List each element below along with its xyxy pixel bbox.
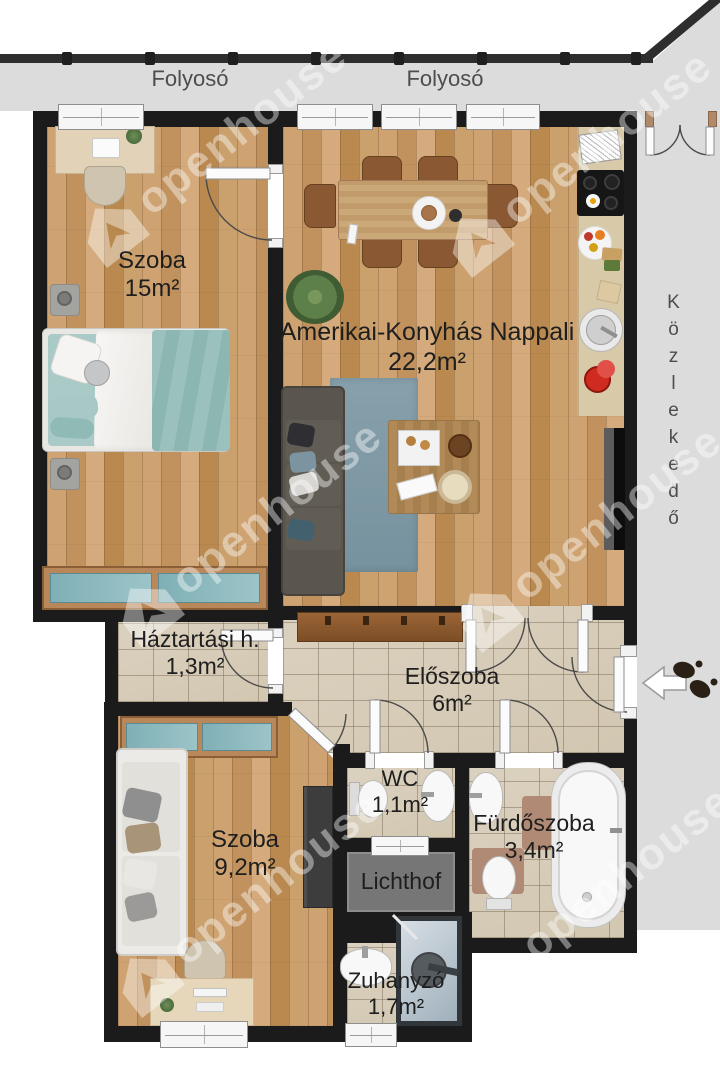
door-leaf bbox=[289, 708, 335, 752]
room-area: 1,7m² bbox=[330, 994, 462, 1020]
door-arc bbox=[206, 174, 272, 240]
room-name: Lichthof bbox=[347, 868, 455, 895]
door-leaf bbox=[646, 127, 654, 155]
door-swings bbox=[0, 0, 720, 1080]
room-area: 6m² bbox=[372, 690, 532, 717]
room-label-household: Háztartási h. 1,3m² bbox=[115, 626, 275, 680]
room-area: 15m² bbox=[92, 275, 212, 303]
room-label-lichthof: Lichthof bbox=[347, 868, 455, 895]
room-label-bathroom: Fürdőszoba 3,4m² bbox=[444, 810, 624, 864]
door-leaf bbox=[206, 168, 270, 179]
room-label-hall: Előszoba 6m² bbox=[372, 663, 532, 717]
door-leaf bbox=[578, 620, 588, 672]
room-label-bedroom: Szoba 15m² bbox=[92, 247, 212, 304]
room-label-small-room: Szoba 9,2m² bbox=[185, 826, 305, 883]
floor-plan: Folyosó Folyosó Közlekedő bbox=[0, 0, 720, 1080]
room-name: Zuhanyzó bbox=[330, 968, 462, 994]
room-area: 1,1m² bbox=[347, 792, 453, 818]
room-label-living: Amerikai-Konyhás Nappali 22,2m² bbox=[262, 318, 592, 377]
room-name: Fürdőszoba bbox=[444, 810, 624, 837]
room-name: Szoba bbox=[92, 247, 212, 275]
room-area: 1,3m² bbox=[115, 653, 275, 680]
door-arc bbox=[528, 618, 583, 672]
room-area: 3,4m² bbox=[444, 837, 624, 864]
room-name: WC bbox=[347, 766, 453, 792]
room-name: Szoba bbox=[185, 826, 305, 854]
room-name: Háztartási h. bbox=[115, 626, 275, 653]
room-name: Előszoba bbox=[372, 663, 532, 690]
door-leaf bbox=[614, 657, 624, 712]
room-label-wc: WC 1,1m² bbox=[347, 766, 453, 818]
room-area: 9,2m² bbox=[185, 854, 305, 882]
door-leaf bbox=[706, 127, 714, 155]
room-area: 22,2m² bbox=[262, 348, 592, 378]
room-name: Amerikai-Konyhás Nappali bbox=[262, 318, 592, 348]
room-label-shower: Zuhanyzó 1,7m² bbox=[330, 968, 462, 1020]
